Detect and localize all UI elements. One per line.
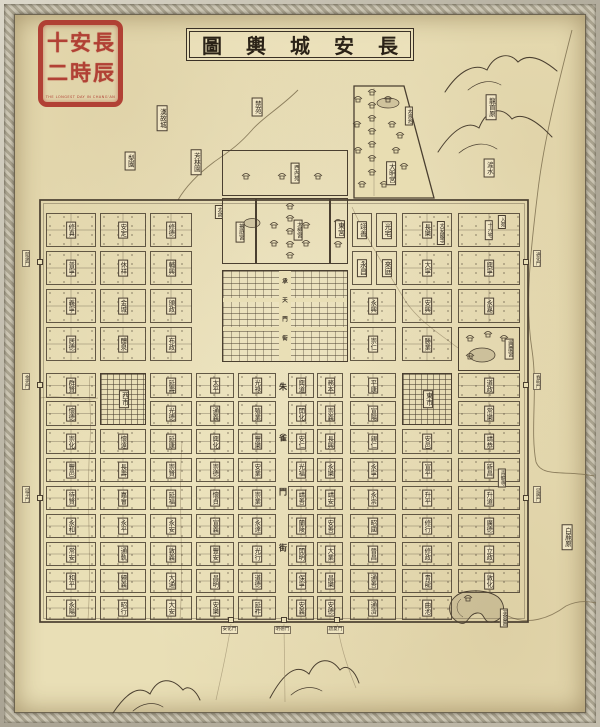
ward-label: 豐安	[210, 546, 220, 563]
seal-char: 時	[69, 57, 92, 87]
gate-tower-啟夏門	[334, 617, 340, 623]
ward-label: 安興	[422, 298, 432, 315]
ward-平康: 平康	[350, 373, 396, 398]
ward-歸義: 歸義	[100, 569, 146, 593]
ward-label: 開化	[296, 405, 306, 422]
ward-label: 興道	[296, 377, 306, 394]
ward-興寧: 興寧	[458, 251, 520, 285]
ward-升道: 升道	[458, 486, 520, 510]
ward-label: 群賢	[66, 377, 76, 394]
ward-昭國: 昭國	[350, 514, 396, 538]
ward-通義: 通義	[196, 401, 234, 426]
ward-長興: 長興	[317, 429, 343, 454]
ward-label: 懷遠	[118, 433, 128, 450]
ward-開化: 開化	[288, 401, 314, 426]
ward-label: 長壽	[118, 462, 128, 479]
ward-延康: 延康	[150, 429, 192, 454]
street-char-雀: 雀	[279, 433, 287, 444]
ward-常樂: 常樂	[458, 401, 520, 426]
ward-label: 殖業	[252, 405, 262, 422]
ward-laiting-label: 來庭	[381, 259, 391, 277]
ward-label: 普寧	[66, 260, 76, 277]
ward-label: 大業	[325, 546, 335, 563]
seal-char: 安	[69, 27, 92, 57]
ward-永興: 永興	[350, 289, 396, 323]
ward-label: 勝業	[422, 336, 432, 353]
ward-保寧: 保寧	[288, 569, 314, 593]
street-char-承: 承	[282, 277, 288, 285]
ward-長壽: 長壽	[100, 458, 146, 482]
street-char-街: 街	[282, 334, 288, 342]
ward-label: 宣陽	[368, 405, 378, 422]
ward-昌明: 昌明	[196, 569, 234, 593]
ward-label: 新昌	[484, 462, 494, 479]
ward-勝業: 勝業	[402, 327, 452, 361]
street-char-街: 街	[279, 543, 287, 554]
ward-label: 安樂	[210, 600, 220, 617]
ward-label: 永達	[252, 518, 262, 535]
ward-昭行: 昭行	[100, 596, 146, 620]
yeting-palace-label: 掖庭宮	[236, 222, 245, 243]
ward-懷遠: 懷遠	[100, 429, 146, 454]
ward-label: 永平	[118, 518, 128, 535]
ward-label: 開明	[296, 546, 306, 563]
ward-label: 布政	[166, 336, 176, 353]
ward-label: 永嘉	[484, 298, 494, 315]
ward-label: 昭國	[368, 518, 378, 535]
ward-延福: 延福	[150, 486, 192, 510]
ward-安興: 安興	[402, 289, 452, 323]
ward-太平: 太平	[196, 373, 234, 398]
ward-蘭陵: 蘭陵	[288, 514, 314, 538]
ward-崇義: 崇義	[317, 401, 343, 426]
ward-休祥: 休祥	[100, 251, 146, 285]
ward-宣平: 宣平	[402, 458, 452, 482]
ward-label: 宣義	[210, 518, 220, 535]
ward-label: 通善	[368, 573, 378, 590]
ward-label: 晉昌	[368, 546, 378, 563]
ward-光福: 光福	[288, 458, 314, 482]
ward-label: 昭行	[118, 600, 128, 617]
ward-開明: 開明	[288, 542, 314, 566]
ward-永崇: 永崇	[350, 486, 396, 510]
west-market: 西市	[100, 373, 146, 425]
ward-label: 大安	[166, 600, 176, 617]
bailu-plateau: 白鹿原	[562, 524, 573, 550]
seal-char: 二	[46, 57, 69, 87]
ward-群賢: 群賢	[46, 373, 96, 398]
ward-醴泉: 醴泉	[100, 327, 146, 361]
ward-修真: 修真	[46, 213, 96, 247]
gate-tower-開遠門	[37, 259, 43, 265]
ward-label: 崇化	[66, 433, 76, 450]
ward-label: 延福	[166, 490, 176, 507]
ward-guangzhai: 光宅	[376, 213, 397, 247]
ward-label: 修政	[422, 546, 432, 563]
ward-label: 延康	[166, 433, 176, 450]
ward-安善: 安善	[317, 514, 343, 538]
xingqing-palace-label: 興慶宮	[505, 339, 514, 360]
ward-興化: 興化	[196, 429, 234, 454]
ward-昌樂: 昌樂	[317, 569, 343, 593]
ward-永和: 永和	[46, 514, 96, 538]
ward-label: 修德	[166, 222, 176, 239]
ward-label: 升道	[484, 490, 494, 507]
ward-光德: 光德	[150, 401, 192, 426]
ward-yishan-label: 翊善	[357, 221, 367, 239]
ward-label: 嘉會	[118, 490, 128, 507]
east-palace: 東宮	[330, 198, 348, 264]
ward-label: 靖善	[296, 490, 306, 507]
gate-tower-延平門	[37, 495, 43, 501]
gate-tower-明德門	[281, 617, 287, 623]
ward-居德: 居德	[46, 327, 96, 361]
seal-characters: 十安長二時辰	[46, 27, 115, 87]
ward-崇仁: 崇仁	[350, 327, 396, 361]
ward-安業: 安業	[238, 458, 276, 482]
ward-label: 崇賢	[166, 462, 176, 479]
ward-通濟: 通濟	[350, 596, 396, 620]
ward-label: 長興	[325, 433, 335, 450]
street-char-門: 門	[279, 487, 287, 498]
ward-輔興: 輔興	[150, 251, 192, 285]
ward-豐安: 豐安	[196, 542, 234, 566]
street-char-門: 門	[282, 315, 288, 323]
title-char: 安	[334, 30, 354, 59]
street-char-朱: 朱	[279, 382, 287, 393]
title-char: 長	[378, 30, 398, 59]
ward-label: 十六宅	[485, 220, 493, 240]
ward-修行: 修行	[402, 514, 452, 538]
ward-label: 金城	[118, 298, 128, 315]
ward-guangzhai-label: 光宅	[381, 221, 391, 239]
map-title: 圖輿城安長	[189, 31, 411, 58]
ward-殖業: 殖業	[238, 401, 276, 426]
seal-char: 十	[46, 27, 69, 57]
ward-宣陽: 宣陽	[350, 401, 396, 426]
ward-崇化: 崇化	[46, 429, 96, 454]
ward-敦化: 敦化	[458, 569, 520, 593]
ward-永樂: 永樂	[317, 458, 343, 482]
ward-label: 居德	[66, 336, 76, 353]
ward-label: 延壽	[166, 377, 176, 394]
ward-崇德: 崇德	[196, 458, 234, 482]
ward-label: 懷德	[66, 405, 76, 422]
ward-崇賢: 崇賢	[150, 458, 192, 482]
ward-label: 靖安	[325, 490, 335, 507]
ward-嘉會: 嘉會	[100, 486, 146, 510]
ward-和平: 和平	[46, 569, 96, 593]
ward-安義: 安義	[288, 596, 314, 620]
ward-label: 光行	[252, 546, 262, 563]
ward-label: 永興	[368, 298, 378, 315]
ward-label: 安業	[252, 462, 262, 479]
map-title-box: 圖輿城安長	[186, 28, 414, 61]
east-palace-label: 東宮	[335, 220, 345, 238]
gate-延興門: 延興門	[533, 486, 541, 503]
ward-label: 昌樂	[325, 573, 335, 590]
ward-大安: 大安	[150, 596, 192, 620]
west-inner-garden: 西內苑	[222, 150, 348, 196]
ward-普寧: 普寧	[46, 251, 96, 285]
ward-義寧: 義寧	[46, 289, 96, 323]
xingqing-palace: 興慶宮	[458, 327, 520, 371]
ward-常安: 常安	[46, 542, 96, 566]
gate-開遠門: 開遠門	[22, 250, 30, 267]
ward-yongchang: 永昌	[352, 251, 372, 285]
ward-label: 懷貞	[210, 490, 220, 507]
ward-label: 永陽	[66, 600, 76, 617]
ward-興道: 興道	[288, 373, 314, 398]
ward-光行: 光行	[238, 542, 276, 566]
ward-延祚: 延祚	[238, 596, 276, 620]
ward-label: 豐邑	[66, 462, 76, 479]
gate-春明門: 春明門	[533, 373, 541, 390]
seal-caption: THE LONGEST DAY IN CHANG'AN	[43, 95, 118, 99]
ward-金城: 金城	[100, 289, 146, 323]
ward-label: 通濟	[368, 600, 378, 617]
ward-道政: 道政	[458, 373, 520, 398]
ward-修政: 修政	[402, 542, 452, 566]
title-char: 輿	[246, 30, 266, 59]
gate-安化門: 安化門	[221, 626, 238, 634]
ward-安仁: 安仁	[288, 429, 314, 454]
ward-待賢: 待賢	[46, 486, 96, 510]
ward-label: 豐樂	[252, 433, 262, 450]
taiye-pond-label: 太液池	[405, 107, 413, 126]
ward-label: 安義	[296, 600, 306, 617]
ward-label: 輔興	[166, 260, 176, 277]
ward-曲池: 曲池	[402, 596, 452, 620]
ward-label: 敦化	[484, 573, 494, 590]
ward-label: 安德	[325, 600, 335, 617]
ward-label: 長樂	[422, 222, 432, 239]
ward-大業: 大業	[317, 542, 343, 566]
west-market-label: 西市	[119, 390, 129, 408]
gate-tower-安化門	[228, 617, 234, 623]
ward-label: 興寧	[484, 260, 494, 277]
ward-立政: 立政	[458, 542, 520, 566]
ward-安邑: 安邑	[402, 429, 452, 454]
taiji-palace: 太極宮	[256, 198, 330, 264]
ward-label: 立政	[484, 546, 494, 563]
ward-label: 太平	[210, 377, 220, 394]
ward-label: 大通	[166, 573, 176, 590]
ward-label: 頒政	[166, 298, 176, 315]
ward-label: 安仁	[296, 433, 306, 450]
ward-yishan: 翊善	[352, 213, 372, 247]
title-char: 城	[290, 30, 310, 59]
ward-label: 保寧	[296, 573, 306, 590]
ward-label: 義寧	[66, 298, 76, 315]
ward-懷德: 懷德	[46, 401, 96, 426]
gate-明德門: 明德門	[274, 626, 291, 634]
ward-靖善: 靖善	[288, 486, 314, 510]
ward-永嘉: 永嘉	[458, 289, 520, 323]
ward-label: 宣平	[422, 462, 432, 479]
ward-新昌: 新昌	[458, 458, 520, 482]
ward-label: 永和	[66, 518, 76, 535]
ward-親仁: 親仁	[350, 429, 396, 454]
ward-label: 常安	[66, 546, 76, 563]
fanglin-garden: 芳林園	[191, 149, 202, 175]
ward-靖恭: 靖恭	[458, 429, 520, 454]
ward-label: 平康	[368, 377, 378, 394]
ward-光祿: 光祿	[238, 373, 276, 398]
furong-garden: 芙蓉園	[500, 609, 508, 628]
ward-label: 務本	[325, 377, 335, 394]
ward-label: 永崇	[368, 490, 378, 507]
ward-升平: 升平	[402, 486, 452, 510]
ward-永達: 永達	[238, 514, 276, 538]
forbidden-park: 禁苑	[252, 98, 263, 117]
qinglong-temple: 青龍寺	[498, 469, 506, 488]
map-canvas: 圖輿城安長 十安長二時辰 THE LONGEST DAY IN CHANG'AN…	[0, 0, 600, 727]
ward-label: 通義	[210, 405, 220, 422]
ward-label: 修行	[422, 518, 432, 535]
street-char-天: 天	[282, 296, 288, 304]
ward-label: 敦義	[166, 546, 176, 563]
ward-廣德: 廣德	[458, 514, 520, 538]
ward-label: 通軌	[118, 546, 128, 563]
ward-label: 青龍	[422, 573, 432, 590]
ward-label: 崇義	[325, 405, 335, 422]
ward-永安: 永安	[150, 514, 192, 538]
ward-懷貞: 懷貞	[196, 486, 234, 510]
ward-豐邑: 豐邑	[46, 458, 96, 482]
ward-label: 修真	[66, 222, 76, 239]
ward-崇業: 崇業	[238, 486, 276, 510]
gate-tower-通化門	[523, 259, 529, 265]
ward-十六宅: 十六宅	[458, 213, 520, 247]
ward-頒政: 頒政	[150, 289, 192, 323]
ward-宣義: 宣義	[196, 514, 234, 538]
ward-豐樂: 豐樂	[238, 429, 276, 454]
west-inner-garden-label: 西內苑	[291, 163, 300, 184]
ward-label: 靖恭	[484, 433, 494, 450]
seal-char: 長	[92, 27, 115, 57]
ward-label: 親仁	[368, 433, 378, 450]
ward-修德: 修德	[150, 213, 192, 247]
gate-通化門: 通化門	[533, 250, 541, 267]
east-market: 東市	[402, 373, 452, 425]
yeting-palace: 掖庭宮	[222, 198, 256, 264]
ward-label: 道政	[484, 377, 494, 394]
gate-啟夏門: 啟夏門	[327, 626, 344, 634]
ward-通軌: 通軌	[100, 542, 146, 566]
ward-道德: 道德	[238, 569, 276, 593]
ward-安定: 安定	[100, 213, 146, 247]
ward-大寧: 大寧	[402, 251, 452, 285]
title-char: 圖	[202, 30, 222, 59]
ward-label: 待賢	[66, 490, 76, 507]
east-market-label: 東市	[423, 390, 433, 408]
pear-garden: 梨園	[125, 152, 136, 171]
ward-label: 昌明	[210, 573, 220, 590]
ward-label: 延祚	[252, 600, 262, 617]
chan-river-label: 滻水	[484, 159, 495, 178]
ward-label: 曲池	[422, 600, 432, 617]
ward-永陽: 永陽	[46, 596, 96, 620]
gate-tower-延興門	[523, 495, 529, 501]
gate-tower-金光門	[37, 382, 43, 388]
seal-char: 辰	[92, 57, 115, 87]
ward-晉昌: 晉昌	[350, 542, 396, 566]
daming-palace-label: 大明宮	[386, 161, 396, 185]
longshou-plateau: 龍首原	[486, 94, 497, 120]
ward-label: 永安	[166, 518, 176, 535]
ward-永寧: 永寧	[350, 458, 396, 482]
ward-延壽: 延壽	[150, 373, 192, 398]
red-seal: 十安長二時辰 THE LONGEST DAY IN CHANG'AN	[38, 20, 123, 107]
ward-label: 廣德	[484, 518, 494, 535]
ward-大通: 大通	[150, 569, 192, 593]
gate-tower-春明門	[523, 382, 529, 388]
ward-laiting: 來庭	[376, 251, 397, 285]
ward-通善: 通善	[350, 569, 396, 593]
taicang: 太倉	[215, 205, 223, 219]
ward-label: 永寧	[368, 462, 378, 479]
ward-yongchang-label: 永昌	[357, 259, 367, 277]
ward-青龍: 青龍	[402, 569, 452, 593]
ward-label: 休祥	[118, 260, 128, 277]
ward-靖安: 靖安	[317, 486, 343, 510]
ruyuan: 入苑	[498, 215, 506, 229]
han-old-city: 漢故城	[157, 105, 168, 131]
ward-永平: 永平	[100, 514, 146, 538]
ward-label: 光祿	[252, 377, 262, 394]
ward-label: 升平	[422, 490, 432, 507]
ward-label: 常樂	[484, 405, 494, 422]
ward-label: 大寧	[422, 260, 432, 277]
ward-label: 醴泉	[118, 336, 128, 353]
ward-label: 光德	[166, 405, 176, 422]
ward-label: 歸義	[118, 573, 128, 590]
ward-label: 崇仁	[368, 336, 378, 353]
ward-label: 安邑	[422, 433, 432, 450]
taiji-palace-label: 太極宮	[294, 220, 303, 241]
ward-label: 道德	[252, 573, 262, 590]
ward-label: 光福	[296, 462, 306, 479]
gate-延平門: 延平門	[22, 486, 30, 503]
ward-label: 興化	[210, 433, 220, 450]
ward-label: 崇業	[252, 490, 262, 507]
ward-label: 崇德	[210, 462, 220, 479]
ward-敦義: 敦義	[150, 542, 192, 566]
ward-label: 永樂	[325, 462, 335, 479]
ward-label: 安善	[325, 518, 335, 535]
daanguo-temple: 大安國寺	[437, 221, 445, 245]
ward-label: 安定	[118, 222, 128, 239]
ward-務本: 務本	[317, 373, 343, 398]
ward-label: 蘭陵	[296, 518, 306, 535]
ward-布政: 布政	[150, 327, 192, 361]
ward-label: 和平	[66, 573, 76, 590]
gate-金光門: 金光門	[22, 373, 30, 390]
